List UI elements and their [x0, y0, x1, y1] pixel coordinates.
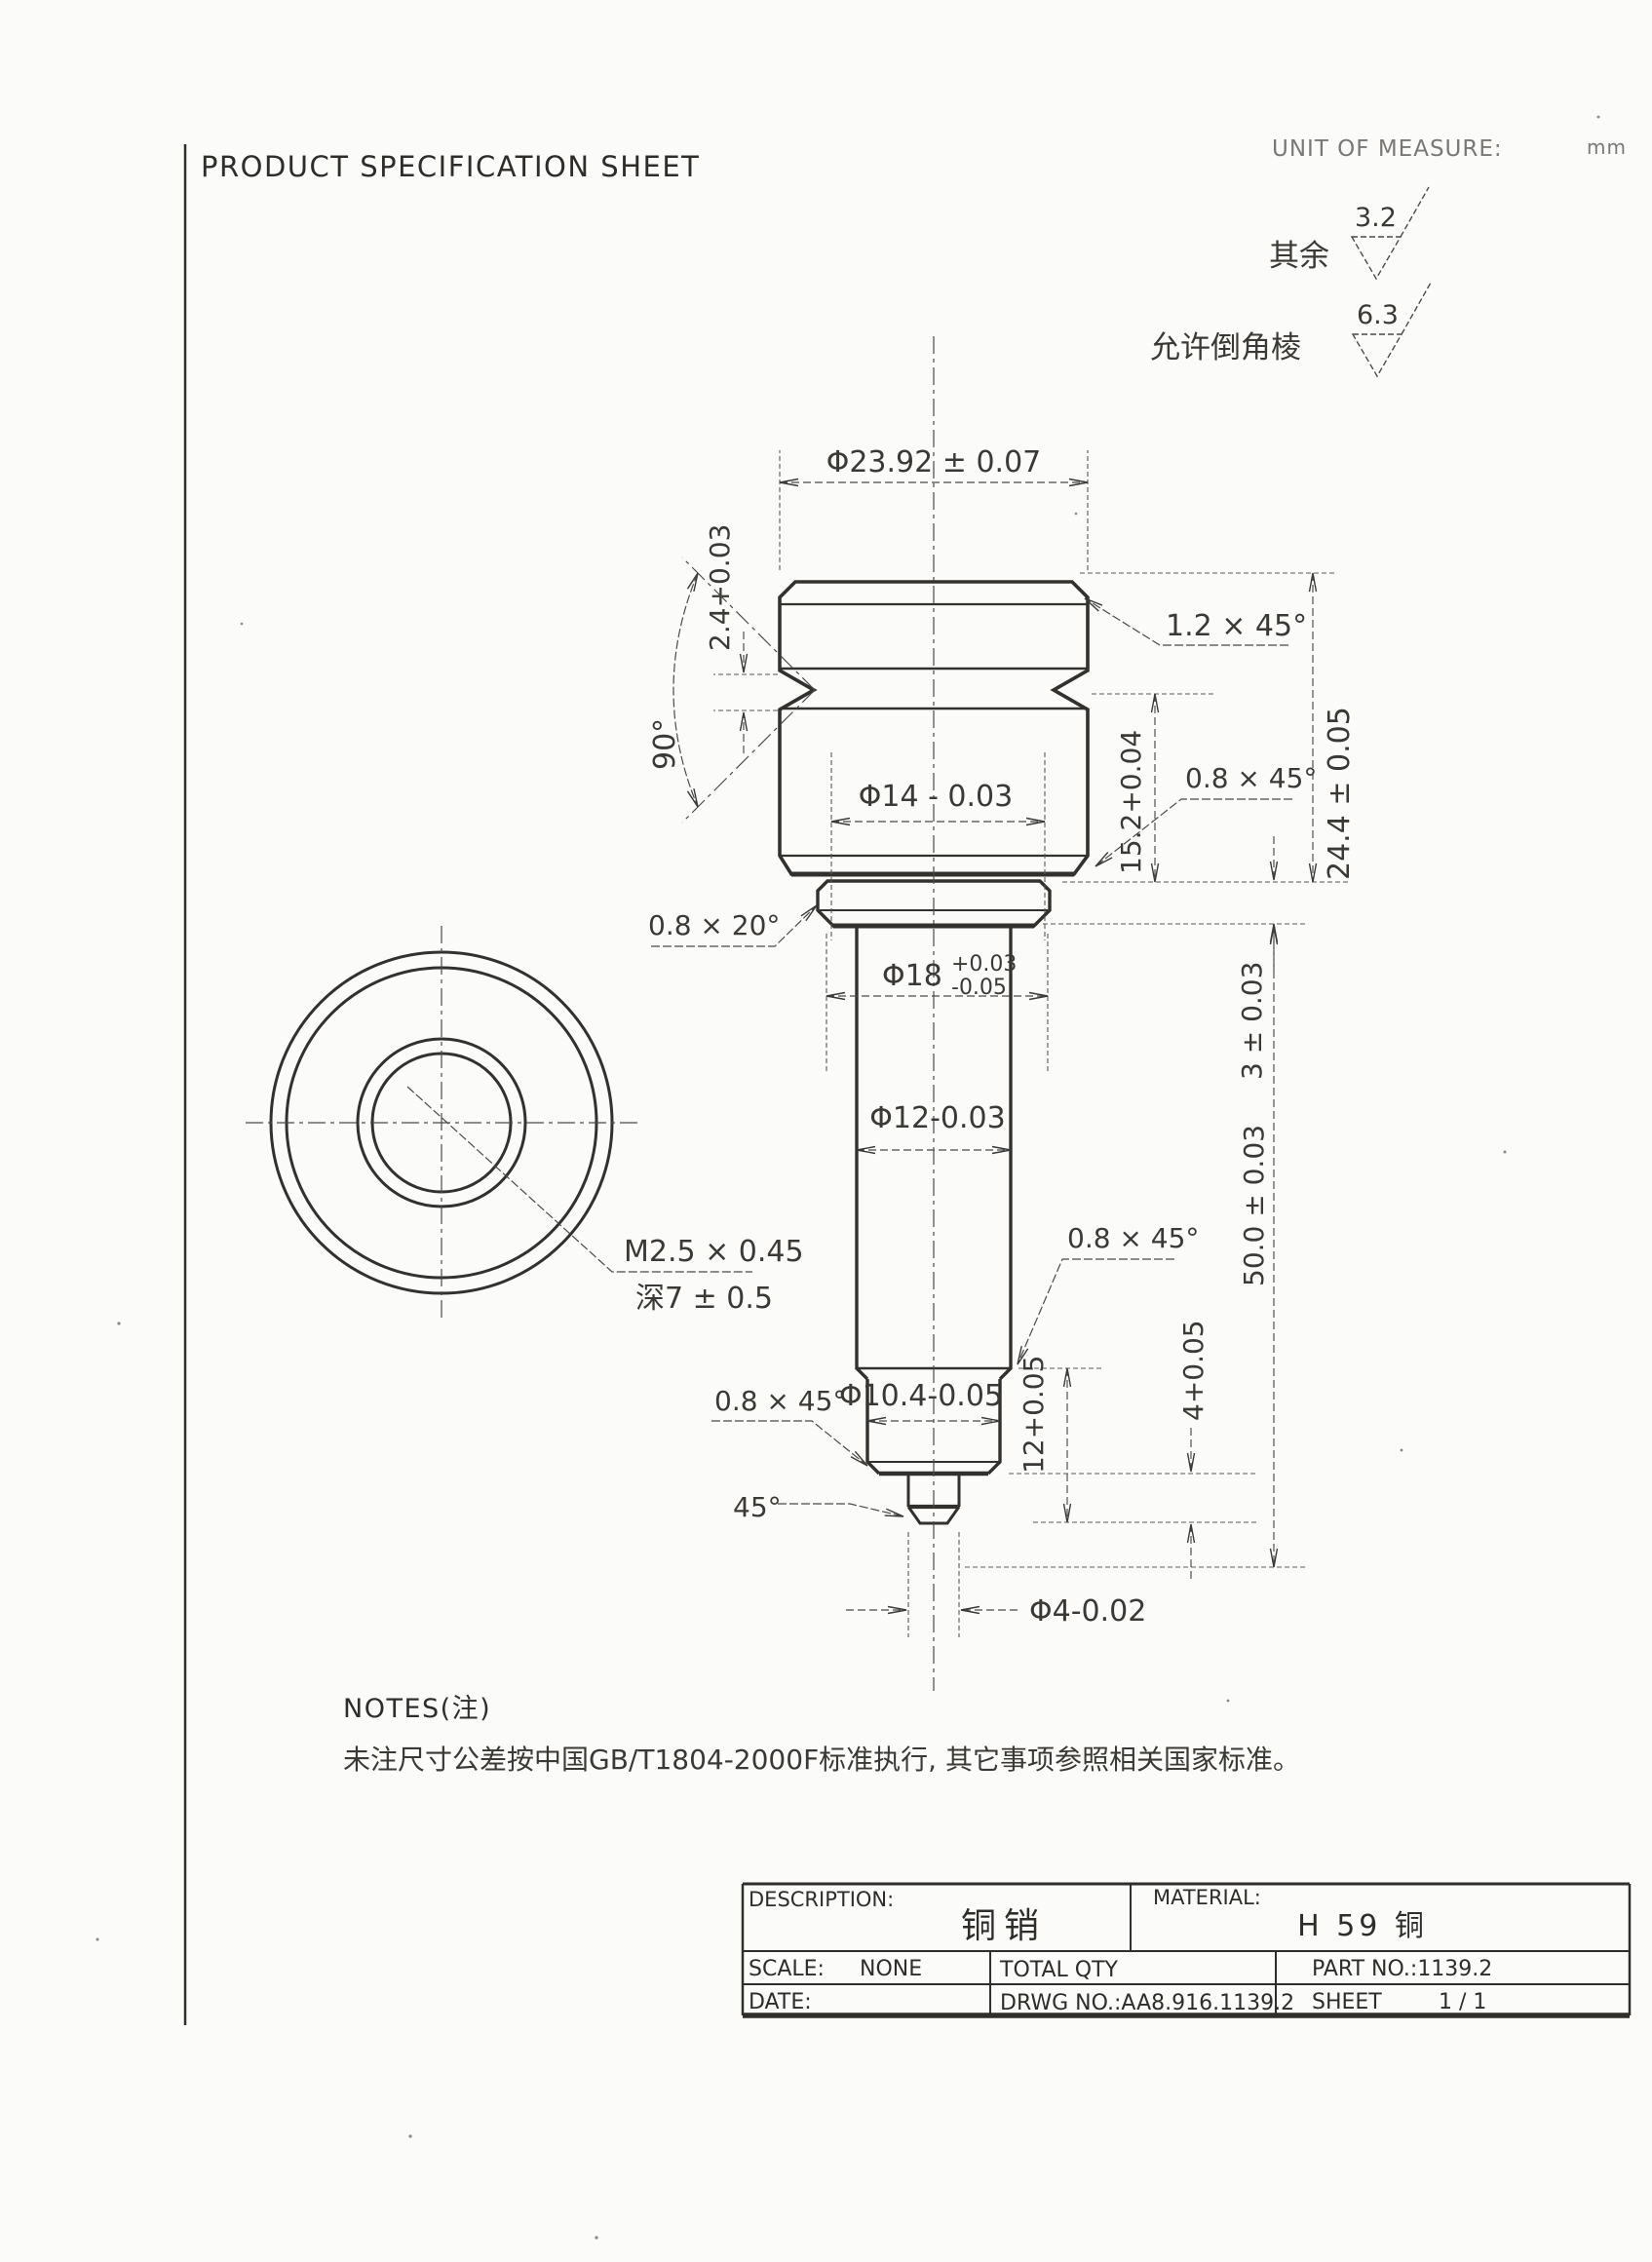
dim-tip-diameter: Φ4-0.02	[846, 1532, 1146, 1637]
dim-inner-diameter: Φ14 - 0.03	[831, 752, 1045, 940]
dim-shaft-end-chamfer: 0.8 × 45°	[1018, 1222, 1199, 1364]
dim-shaft-diameter: Φ12-0.03	[857, 1101, 1011, 1150]
surface-finish-chamfer: 允许倒角棱 6.3	[1150, 283, 1431, 376]
sheet-value: 1 / 1	[1439, 1990, 1486, 2014]
svg-text:Φ14 - 0.03: Φ14 - 0.03	[859, 780, 1013, 814]
svg-text:2.4+0.03: 2.4+0.03	[704, 524, 736, 651]
unit-of-measure-value: mm	[1587, 135, 1627, 159]
roughness-icon	[1352, 187, 1429, 279]
total-qty-label: TOTAL QTY	[999, 1958, 1119, 1982]
svg-text:4+0.05: 4+0.05	[1177, 1320, 1210, 1421]
dim-flange-diameter: Φ18 +0.03 -0.05	[826, 934, 1048, 1072]
svg-text:24.4 ± 0.05: 24.4 ± 0.05	[1323, 707, 1357, 880]
title-block: DESCRIPTION: 铜销 MATERIAL: H 59 铜 SCALE: …	[743, 1884, 1630, 2015]
rest-roughness-value: 3.2	[1355, 203, 1397, 233]
svg-text:+0.03: +0.03	[951, 952, 1017, 977]
material-value: H 59 铜	[1297, 1909, 1428, 1943]
svg-text:50.0 ± 0.03: 50.0 ± 0.03	[1238, 1125, 1270, 1286]
dim-flange-height: 3 ± 0.03	[1236, 836, 1274, 1080]
description-label: DESCRIPTION:	[749, 1888, 894, 1911]
specification-sheet-page: PRODUCT SPECIFICATION SHEET UNIT OF MEAS…	[0, 0, 1652, 2262]
dim-groove-width: 2.4+0.03	[704, 524, 778, 753]
part-no: PART NO.:1139.2	[1312, 1957, 1492, 1981]
date-label: DATE:	[749, 1990, 812, 2014]
material-label: MATERIAL:	[1153, 1886, 1261, 1909]
svg-text:0.8 × 45°: 0.8 × 45°	[714, 1385, 846, 1417]
dim-step-diameter: Φ10.4-0.05	[839, 1379, 1003, 1421]
svg-text:深7 ± 0.5: 深7 ± 0.5	[635, 1282, 773, 1316]
svg-text:Φ23.92 ± 0.07: Φ23.92 ± 0.07	[826, 445, 1042, 479]
rest-label: 其余	[1269, 239, 1329, 274]
svg-text:90°: 90°	[648, 718, 682, 770]
svg-text:1.2 × 45°: 1.2 × 45°	[1166, 609, 1307, 643]
svg-text:0.8 × 45°: 0.8 × 45°	[1067, 1222, 1199, 1254]
svg-text:15.2+0.04: 15.2+0.04	[1115, 730, 1147, 874]
unit-of-measure-label: UNIT OF MEASURE:	[1272, 136, 1503, 162]
surface-finish-rest: 其余 3.2	[1269, 187, 1429, 279]
scale-label: SCALE:	[749, 1957, 825, 1981]
dim-tip-angle: 45°	[733, 1491, 903, 1523]
svg-text:12+0.05: 12+0.05	[1018, 1356, 1050, 1474]
notes-body: 未注尺寸公差按中国GB/T1804-2000F标准执行, 其它事项参照相关国家标…	[343, 1744, 1300, 1776]
end-view	[246, 926, 637, 1320]
svg-text:45°: 45°	[733, 1491, 782, 1523]
sheet-label: SHEET	[1312, 1990, 1382, 2014]
side-view	[780, 336, 1088, 1691]
svg-text:-0.05: -0.05	[951, 976, 1007, 1000]
svg-text:Φ18: Φ18	[882, 959, 942, 993]
chamfer-roughness-value: 6.3	[1357, 300, 1399, 330]
svg-text:M2.5 × 0.45: M2.5 × 0.45	[624, 1235, 804, 1269]
svg-text:3 ± 0.03: 3 ± 0.03	[1236, 962, 1268, 1080]
svg-text:Φ12-0.03: Φ12-0.03	[869, 1101, 1005, 1135]
dim-flange-edge-chamfer: 0.8 × 20°	[648, 905, 817, 946]
engineering-drawing: PRODUCT SPECIFICATION SHEET UNIT OF MEAS…	[0, 0, 1652, 2262]
svg-text:0.8 × 45°: 0.8 × 45°	[1185, 762, 1317, 794]
scale-value: NONE	[860, 1957, 922, 1981]
drwg-no: DRWG NO.:AA8.916.1139.2	[1000, 1991, 1294, 2015]
notes-heading: NOTES(注)	[343, 1694, 491, 1724]
chamfer-allow-label: 允许倒角棱	[1150, 330, 1301, 365]
dim-head-chamfer: 1.2 × 45°	[1085, 598, 1307, 645]
svg-text:Φ4-0.02: Φ4-0.02	[1029, 1594, 1146, 1629]
svg-text:Φ10.4-0.05: Φ10.4-0.05	[839, 1379, 1003, 1413]
shaft-left-edge	[857, 926, 867, 1379]
page-title: PRODUCT SPECIFICATION SHEET	[201, 150, 700, 183]
dim-step-length: 12+0.05	[1018, 1356, 1101, 1522]
notes-section: NOTES(注) 未注尺寸公差按中国GB/T1804-2000F标准执行, 其它…	[343, 1694, 1300, 1776]
description-value: 铜销	[961, 1906, 1047, 1946]
svg-text:0.8 × 20°: 0.8 × 20°	[648, 909, 780, 941]
